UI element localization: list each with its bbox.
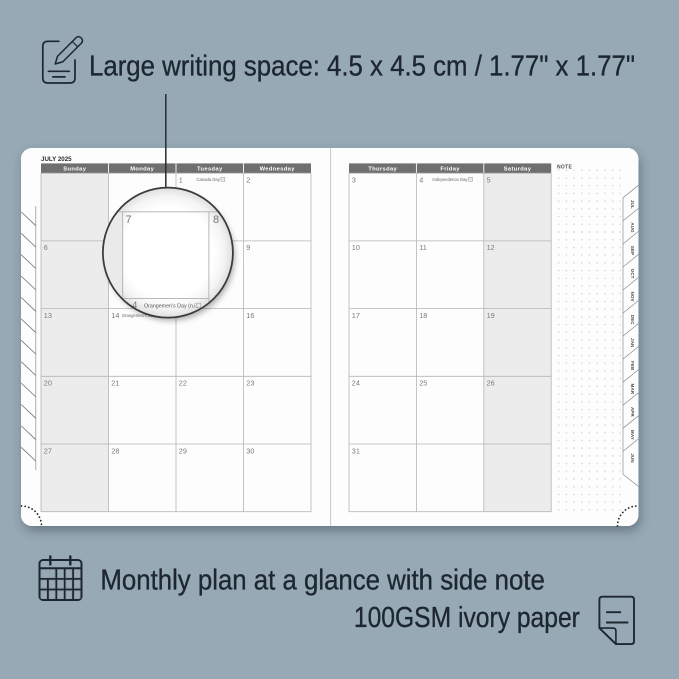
svg-text:Monthly plan at a glance with: Monthly plan at a glance with side note [100, 565, 545, 597]
svg-text:Saturday: Saturday [504, 166, 532, 172]
svg-text:JAN: JAN [630, 338, 635, 347]
svg-text:5: 5 [487, 176, 491, 185]
svg-text:Large writing space: 4.5 x 4.5: Large writing space: 4.5 x 4.5 cm / 1.77… [89, 51, 635, 83]
svg-text:APR: APR [630, 407, 635, 417]
svg-text:20: 20 [44, 379, 52, 388]
svg-text:31: 31 [352, 446, 360, 455]
svg-text:Canada Day: Canada Day [197, 177, 221, 182]
svg-text:Thursday: Thursday [368, 166, 397, 172]
svg-text:100GSM ivory paper: 100GSM ivory paper [354, 602, 580, 634]
svg-text:22: 22 [179, 379, 187, 388]
svg-text:17: 17 [352, 311, 360, 320]
svg-text:FEB: FEB [630, 361, 635, 370]
svg-text:28: 28 [111, 446, 119, 455]
svg-text:24: 24 [352, 379, 360, 388]
svg-text:13: 13 [44, 311, 52, 320]
svg-text:21: 21 [111, 379, 119, 388]
svg-text:3: 3 [352, 176, 356, 185]
svg-text:OCT: OCT [630, 269, 635, 279]
svg-text:25: 25 [419, 379, 427, 388]
svg-text:MAR: MAR [630, 384, 635, 395]
svg-text:18: 18 [419, 311, 427, 320]
svg-text:8: 8 [213, 214, 219, 226]
svg-text:1: 1 [179, 176, 183, 185]
svg-text:Tuesday: Tuesday [197, 166, 223, 172]
svg-text:SEP: SEP [630, 246, 635, 255]
svg-text:Orangemen’s Day (n.i.): Orangemen’s Day (n.i.) [144, 304, 199, 310]
svg-text:9: 9 [246, 243, 250, 252]
svg-text:4: 4 [419, 176, 423, 185]
svg-text:11: 11 [419, 243, 427, 252]
svg-text:14: 14 [111, 311, 119, 320]
svg-text:26: 26 [487, 379, 495, 388]
svg-text:Independence Day: Independence Day [432, 177, 468, 182]
svg-text:Wednesday: Wednesday [260, 166, 296, 172]
svg-text:30: 30 [246, 446, 254, 455]
svg-text:6: 6 [44, 243, 48, 252]
svg-text:23: 23 [246, 379, 254, 388]
svg-text:JUN: JUN [630, 453, 635, 462]
svg-text:Sunday: Sunday [63, 166, 86, 172]
svg-text:Monday: Monday [130, 166, 154, 172]
svg-text:2: 2 [246, 176, 250, 185]
svg-text:19: 19 [487, 311, 495, 320]
svg-text:7: 7 [126, 214, 132, 226]
svg-text:Friday: Friday [440, 166, 460, 172]
svg-text:MAY: MAY [630, 430, 635, 440]
svg-text:NOV: NOV [630, 292, 635, 302]
svg-text:JUL: JUL [630, 200, 635, 209]
svg-text:27: 27 [44, 446, 52, 455]
svg-text:DEC: DEC [630, 315, 635, 325]
svg-text:AUG: AUG [630, 222, 635, 233]
svg-text:29: 29 [179, 446, 187, 455]
svg-text:JULY 2025: JULY 2025 [41, 156, 72, 163]
svg-text:12: 12 [487, 243, 495, 252]
svg-text:10: 10 [352, 243, 360, 252]
svg-text:16: 16 [246, 311, 254, 320]
